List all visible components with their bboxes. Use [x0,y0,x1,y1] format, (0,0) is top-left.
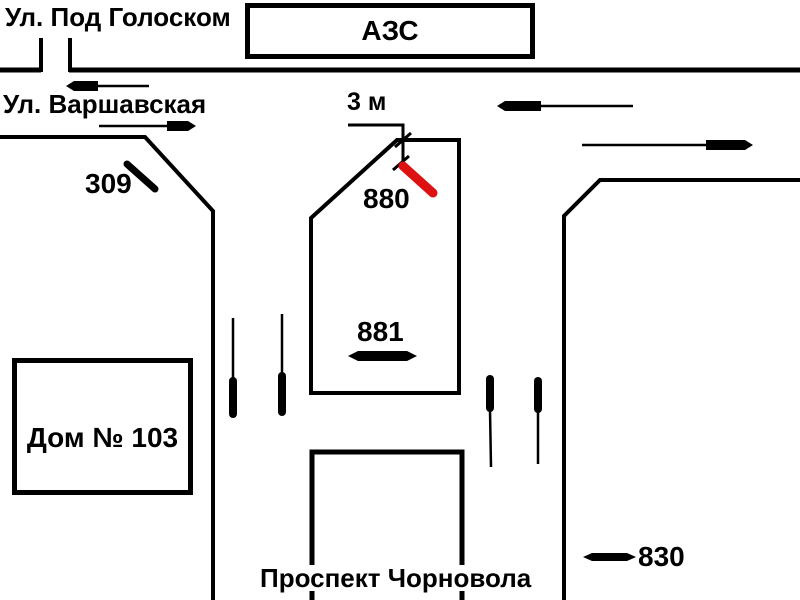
pole-marker-right-1 [490,379,491,467]
street-label-varshavskaya: Ул. Варшавская [3,91,206,117]
billboard-881-marker [348,351,417,361]
house-103-label: Дом № 103 [27,422,178,454]
house-103-box: Дом № 103 [12,358,193,495]
arrow-head-icon [706,140,753,150]
billboard-830-marker [583,553,636,561]
lane-arrow-east-lower [99,121,196,131]
gas-station-box: АЗС [245,3,535,59]
gas-station-label: АЗС [361,15,418,47]
billboard-830-label: 830 [638,543,685,571]
street-label-pod-goloskom: Ул. Под Голоском [5,4,231,30]
billboard-880-label: 880 [363,185,410,213]
arrow-head-icon [497,101,541,111]
block-right-outline [564,180,800,600]
street-label-prospekt-chornovola: Проспект Чорновола [257,565,534,591]
lane-arrow-west-right-side [497,101,633,111]
arrow-head-icon [167,121,196,131]
billboard-881-label: 881 [357,318,404,346]
lane-arrow-east-right-side [582,140,753,150]
billboard-309-label: 309 [85,170,132,198]
dimension-label: 3 м [347,90,386,115]
billboard-location-map: АЗС Дом № 103 Ул. Под Голоском Ул. Варша… [0,0,800,600]
